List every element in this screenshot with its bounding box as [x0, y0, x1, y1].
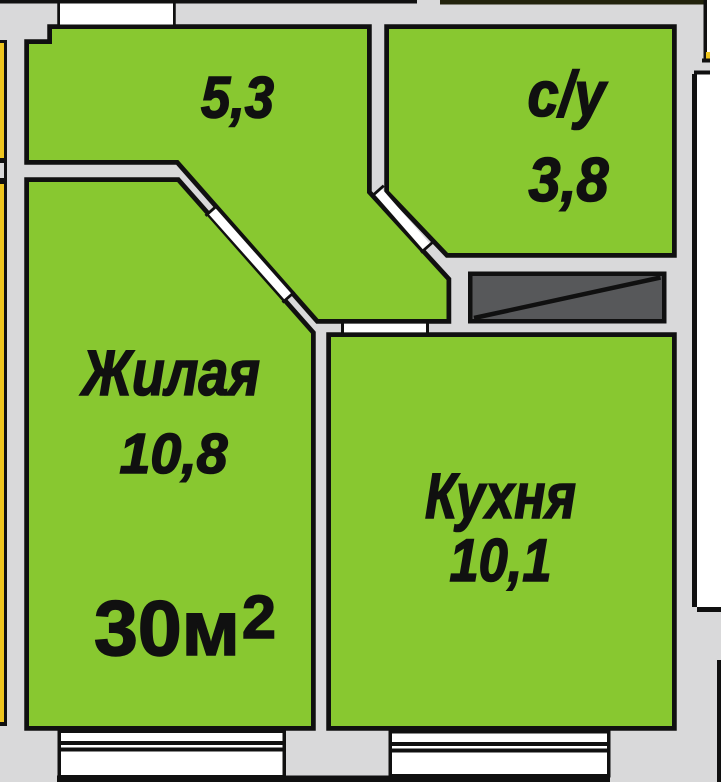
svg-text:10,8: 10,8	[120, 422, 228, 486]
svg-text:3,8: 3,8	[529, 146, 609, 215]
svg-text:30м: 30м	[94, 584, 240, 672]
svg-text:Жилая: Жилая	[79, 337, 260, 409]
svg-text:2: 2	[242, 583, 276, 651]
svg-text:Кухня: Кухня	[425, 460, 576, 532]
svg-text:10,1: 10,1	[450, 527, 552, 594]
svg-text:5,3: 5,3	[201, 66, 274, 131]
svg-text:с/у: с/у	[528, 58, 609, 130]
